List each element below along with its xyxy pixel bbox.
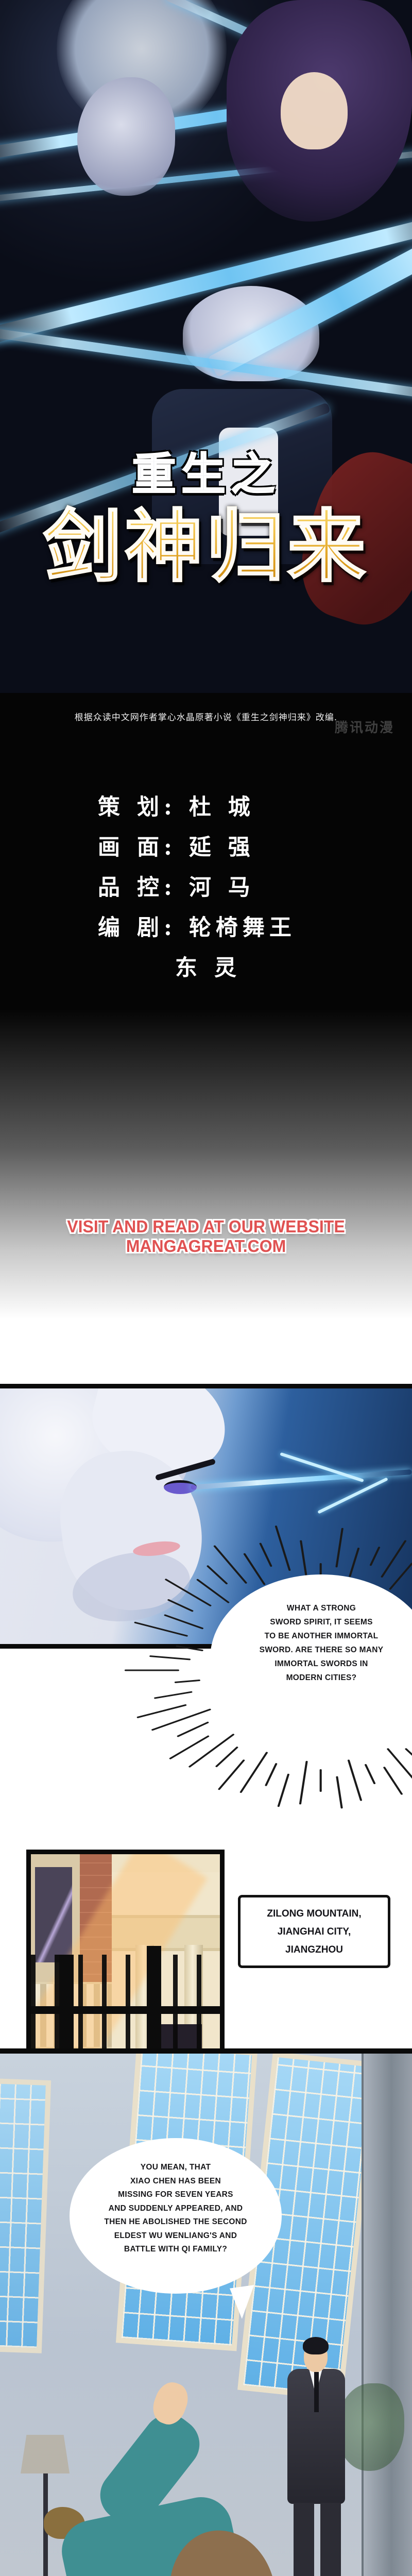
caption-line: JIANGHAI CITY, [241, 1923, 388, 1941]
lightning-bolt [317, 1477, 388, 1514]
suit-man-leg [294, 2503, 314, 2576]
black-to-white-fade [0, 1010, 412, 1319]
credit-row: 东 灵 [98, 948, 296, 988]
lattice-window [0, 2078, 51, 2353]
caption-line: JIANGZHOU [241, 1941, 388, 1959]
series-title-main: 剑神归来 [0, 483, 412, 597]
potted-plant [337, 2383, 404, 2471]
manhua-chapter-page: 重生之 剑神归来 根据众读中文网作者掌心水晶原著小说《重生之剑神归来》改编. 腾… [0, 0, 412, 2576]
panel-interior: 腾讯动漫 [0, 2048, 412, 2576]
girl-face [281, 72, 348, 149]
suit-man-hair [303, 2337, 329, 2354]
location-caption-box: ZILONG MOUNTAIN, JIANGHAI CITY, JIANGZHO… [238, 1895, 390, 1968]
credit-row: 画 面: 延 强 [98, 827, 296, 868]
credit-row: 品 控: 河 马 [98, 868, 296, 908]
lightning-bolt [191, 1469, 412, 1490]
publisher-watermark: 腾讯动漫 [335, 717, 394, 736]
site-promo-banner: VISIT AND READ AT OUR WEBSITE MANGAGREAT… [6, 1217, 406, 1256]
credits-block: 策 划: 杜 城 画 面: 延 强 品 控: 河 马 编 剧: 轮椅舞王 东 灵 [98, 787, 296, 988]
stone-pillar [362, 2054, 412, 2576]
credit-row: 策 划: 杜 城 [98, 787, 296, 827]
floor-lamp-shade [21, 2435, 70, 2473]
silver-haired-man [77, 77, 175, 196]
credit-row: 编 剧: 轮椅舞王 [98, 908, 296, 948]
suit-man-tie [314, 2372, 319, 2412]
speech-bubble-you-mean: YOU MEAN, THAT XIAO CHEN HAS BEEN MISSIN… [70, 2138, 282, 2294]
cover-art: 重生之 剑神归来 [0, 0, 412, 693]
speech-text: WHAT A STRONG SWORD SPIRIT, IT SEEMS TO … [210, 1601, 412, 1685]
mansion-window [35, 1867, 72, 1962]
speech-text: YOU MEAN, THAT XIAO CHEN HAS BEEN MISSIN… [70, 2161, 282, 2257]
caption-line: ZILONG MOUNTAIN, [241, 1905, 388, 1923]
suit-man-leg [320, 2503, 341, 2576]
